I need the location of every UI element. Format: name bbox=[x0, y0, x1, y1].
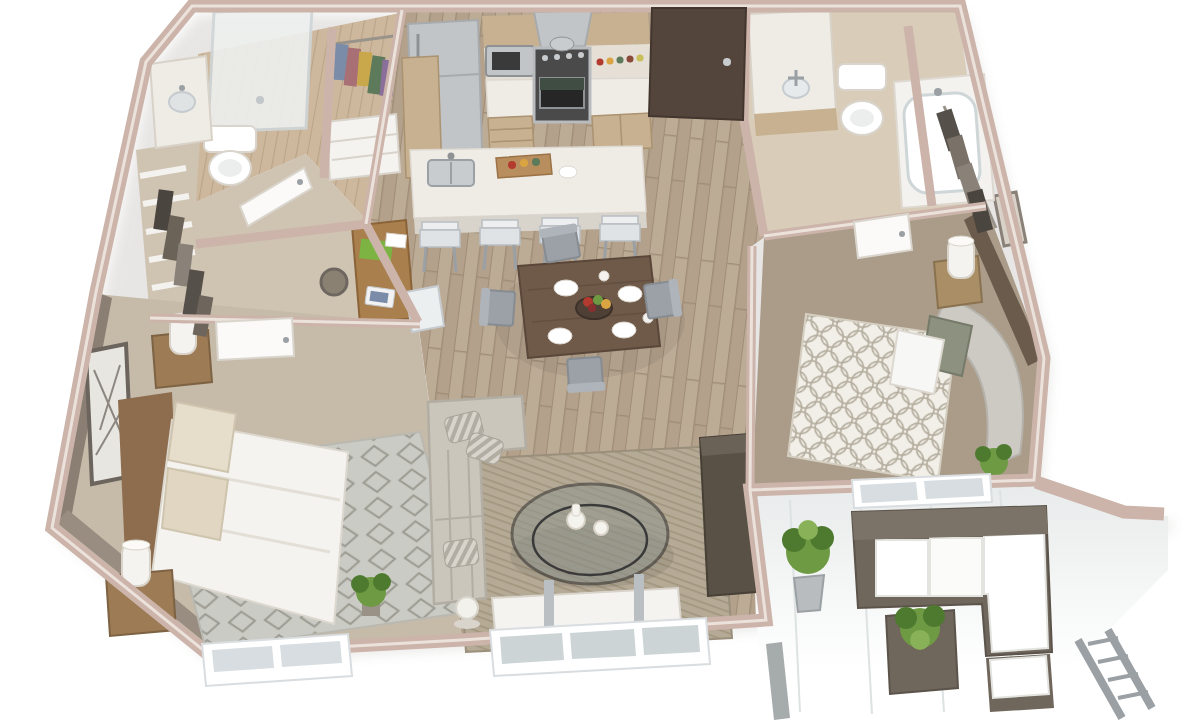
cushion-corner bbox=[984, 532, 1048, 652]
bed2-pillow-white bbox=[890, 330, 944, 394]
bedroom1-door bbox=[216, 318, 294, 360]
master-window bbox=[202, 634, 352, 686]
master-pillow-2 bbox=[162, 468, 228, 540]
bed2-lamp bbox=[948, 236, 974, 278]
vanity-2 bbox=[748, 8, 838, 136]
stove bbox=[534, 37, 590, 122]
cushion-2 bbox=[930, 538, 982, 596]
shower bbox=[208, 8, 312, 132]
dresser bbox=[326, 114, 400, 180]
notepad bbox=[385, 233, 406, 248]
cushion-1 bbox=[876, 540, 928, 596]
master-pillow-1 bbox=[168, 402, 236, 472]
basket bbox=[321, 269, 347, 295]
entry-door-handle bbox=[723, 58, 731, 66]
floorplan-render bbox=[0, 0, 1200, 720]
sofa-pillow-3 bbox=[442, 538, 479, 568]
shower-drain bbox=[256, 96, 264, 104]
vanity-1 bbox=[150, 56, 212, 148]
floorplan-svg bbox=[0, 0, 1200, 720]
patio-railing bbox=[1078, 630, 1152, 718]
ottoman bbox=[986, 654, 1054, 712]
bedroom2-window bbox=[852, 474, 992, 508]
planter-table bbox=[886, 605, 958, 694]
entry-door bbox=[649, 8, 746, 120]
floor-lamp bbox=[454, 597, 480, 629]
lamp-south bbox=[122, 540, 150, 586]
